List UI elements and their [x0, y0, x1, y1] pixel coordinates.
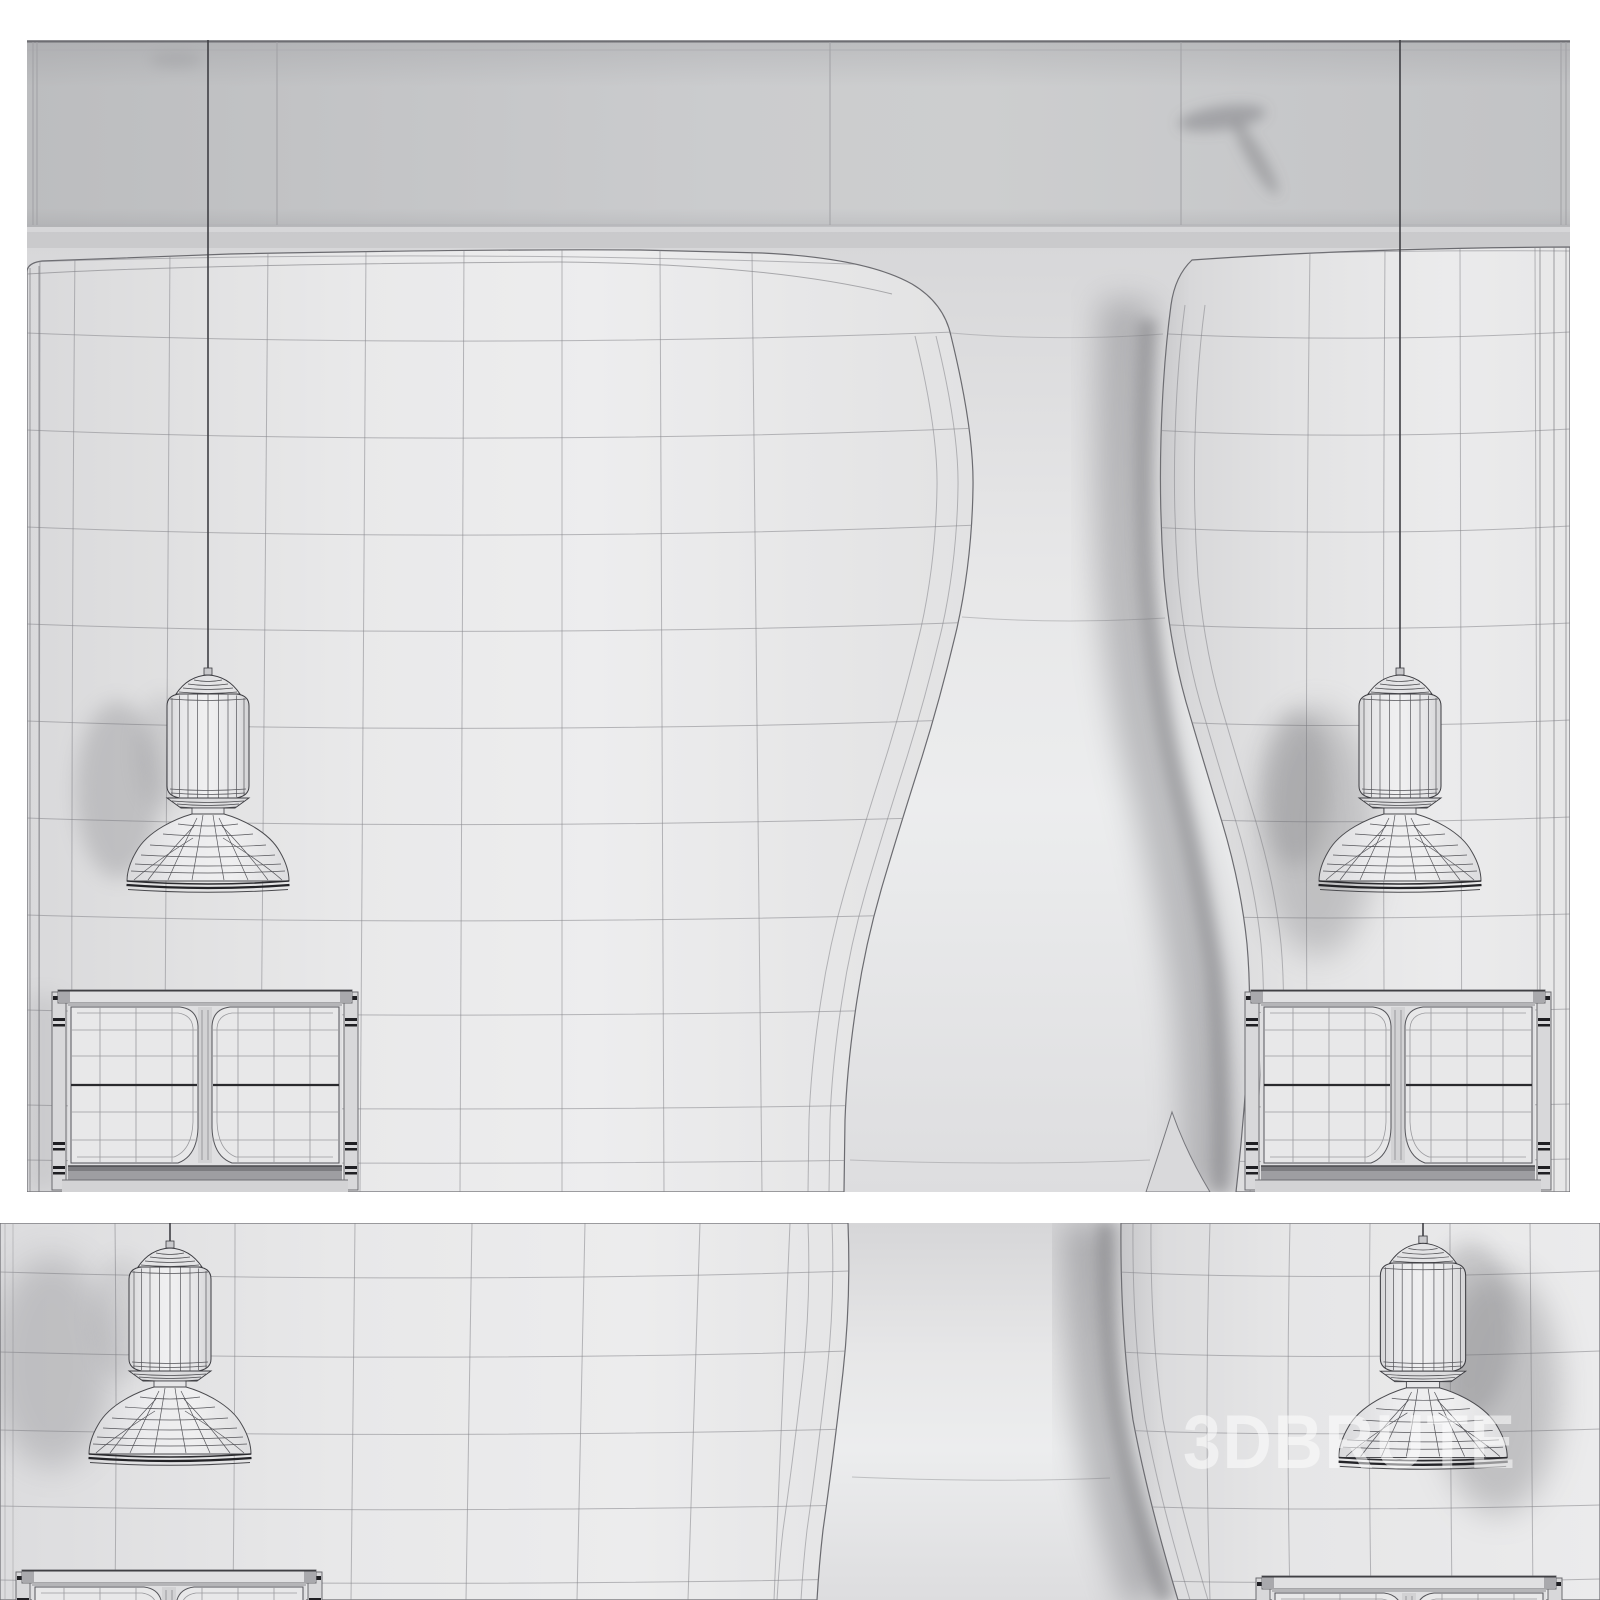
nightstand-right: [1245, 990, 1551, 1192]
watermark: 3DBRUTE: [1183, 1400, 1517, 1485]
detail-strip: 3DBRUTE: [0, 1223, 1600, 1600]
render-canvas: 3DBRUTE: [0, 0, 1600, 1600]
canopy-shadow-left: [150, 52, 202, 68]
strip-nightstand-right: [1256, 1576, 1562, 1600]
strip-nightstand-left: [16, 1570, 322, 1600]
main-view: [27, 40, 1570, 1192]
wall-upper-band: [27, 40, 1570, 248]
nightstand-left: [52, 990, 358, 1192]
